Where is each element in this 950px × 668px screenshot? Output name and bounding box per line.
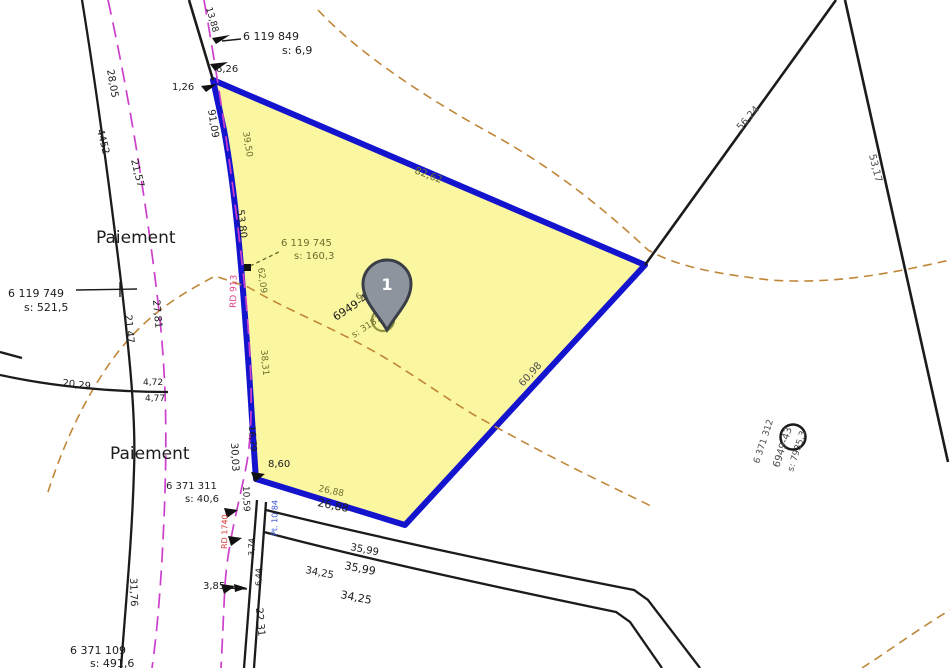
dist-10-59: 10,59 (240, 486, 251, 512)
note-3-74: 3,74 (247, 538, 256, 556)
dist-21-47: 21,47 (122, 314, 135, 343)
dist-4-77: 4,77 (145, 394, 165, 404)
dist-20-29: 20,29 (62, 378, 92, 392)
boundary-line-e (845, 0, 948, 462)
dist-8-60: 8,60 (268, 459, 290, 470)
label-pt-6119849: 6 119 849 (243, 30, 299, 43)
dist-28-05: 28,05 (104, 69, 120, 99)
road-axis-west (108, 0, 166, 668)
path-south-lower (264, 532, 662, 668)
dist-6-26: 6,26 (216, 64, 238, 75)
label-paiement-lower: Paiement (110, 444, 190, 464)
label-paiement-upper: Paiement (96, 228, 176, 248)
road-rd1740: RD 1740 (220, 514, 230, 549)
label-pt-6371311: 6 371 311 (166, 481, 217, 492)
label-pt-6371109: 6 371 109 (70, 644, 126, 657)
label-pt-6119745-s: s: 160,3 (294, 251, 334, 262)
note-pt-10-84: Pt. 10 84 (270, 500, 280, 536)
label-pt-6119749: 6 119 749 (8, 287, 64, 300)
dist-13-88: 13,88 (203, 6, 220, 34)
path-south-upper (266, 510, 700, 668)
dist-1-26: 1,26 (172, 82, 194, 93)
dist-35-99-b: 35,99 (343, 559, 376, 578)
label-pt-6371311-s: s: 40,6 (185, 494, 219, 505)
survey-point-marker (234, 584, 247, 592)
dist-27-81: 27,81 (150, 299, 163, 328)
leader-6119749 (76, 289, 137, 290)
dist-31-76: 31,76 (127, 578, 139, 607)
dist-3-85: 3,85 (203, 581, 225, 592)
dist-34-25-b: 34,25 (339, 588, 372, 607)
label-pt-6119745: 6 119 745 (281, 238, 332, 249)
road-rd913: RD 913 (229, 275, 240, 308)
label-pt-6119849-s: s: 6,9 (282, 44, 312, 57)
dist-22-31: 22,31 (253, 607, 266, 636)
label-pt-6119749-s: s: 521,5 (24, 301, 68, 314)
leader-6119849 (222, 39, 241, 41)
label-parcel2-id: 6 371 312 (752, 418, 776, 465)
dist-56-24: 56,24 (735, 104, 762, 133)
boundary-line-ne (645, 0, 836, 265)
pin-number: 1 (381, 275, 392, 294)
contour-line-corner (862, 610, 950, 668)
dist-30-03: 30,03 (228, 443, 240, 472)
dist-4-72: 4,72 (143, 378, 163, 388)
survey-point-marker (244, 264, 251, 271)
dist-34-25-a: 34,25 (304, 565, 334, 581)
survey-point-marker (228, 536, 242, 546)
dist-4452: 4452 (94, 128, 111, 155)
survey-point-marker (212, 35, 230, 44)
label-pt-6371109-s: s: 491,6 (90, 657, 134, 668)
edge-west-stub (0, 352, 22, 358)
dist-21-57: 21,57 (128, 158, 146, 188)
cadastral-map: PaiementPaiement6 119 749s: 521,56 119 8… (0, 0, 950, 668)
cadastral-map-svg: PaiementPaiement6 119 749s: 521,56 119 8… (0, 0, 950, 668)
dist-16-79: 16,79 (246, 426, 258, 453)
note-6-44: 6,44 (254, 568, 263, 586)
